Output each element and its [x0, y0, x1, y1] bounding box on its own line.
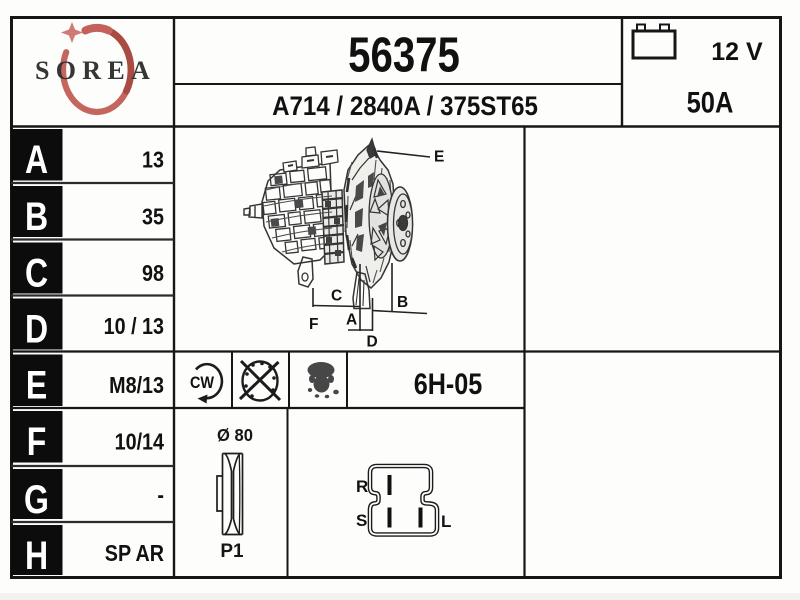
svg-text:A: A	[25, 137, 48, 182]
svg-text:12 V: 12 V	[711, 38, 763, 66]
svg-text:E: E	[434, 149, 444, 166]
svg-text:H: H	[25, 533, 48, 578]
svg-text:Ø 80: Ø 80	[217, 424, 253, 445]
svg-text:M8/13: M8/13	[109, 371, 164, 398]
svg-text:L: L	[441, 512, 451, 531]
svg-text:10/14: 10/14	[115, 428, 164, 455]
svg-text:A: A	[346, 312, 357, 329]
svg-text:SOREA: SOREA	[35, 56, 156, 85]
svg-text:35: 35	[142, 203, 164, 230]
svg-text:98: 98	[142, 259, 164, 286]
svg-text:B: B	[397, 294, 408, 311]
svg-text:R: R	[356, 477, 368, 496]
svg-text:56375: 56375	[348, 28, 460, 83]
svg-text:F: F	[27, 419, 47, 464]
svg-text:CW: CW	[190, 374, 214, 392]
svg-text:F: F	[309, 316, 318, 333]
svg-text:6H-05: 6H-05	[414, 367, 483, 401]
svg-text:A714 / 2840A / 375ST65: A714 / 2840A / 375ST65	[272, 92, 538, 121]
svg-text:10 / 13: 10 / 13	[104, 312, 164, 339]
svg-text:D: D	[25, 306, 48, 351]
svg-text:D: D	[367, 334, 378, 351]
svg-text:SP AR: SP AR	[105, 539, 165, 566]
svg-text:C: C	[331, 288, 342, 305]
svg-text:C: C	[25, 250, 48, 295]
svg-text:P1: P1	[220, 541, 244, 562]
svg-text:S: S	[356, 511, 367, 530]
svg-text:13: 13	[142, 146, 164, 173]
svg-text:-: -	[157, 481, 164, 508]
svg-text:50A: 50A	[687, 86, 734, 119]
svg-text:G: G	[24, 477, 49, 522]
svg-text:E: E	[26, 362, 47, 407]
svg-text:B: B	[25, 194, 48, 239]
